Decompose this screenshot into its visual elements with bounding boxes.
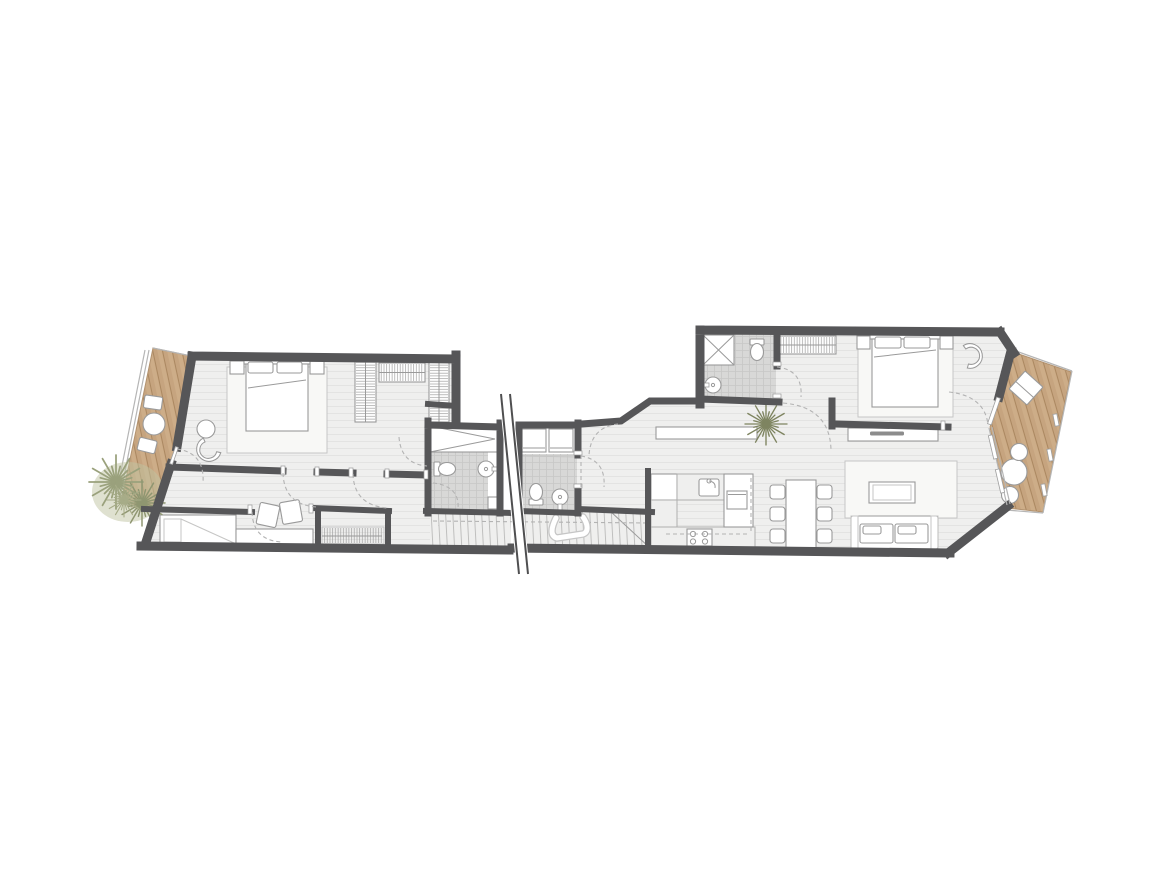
pillow [277, 362, 302, 373]
door-jamb [773, 362, 781, 366]
bathroom1-tiles [429, 452, 488, 510]
floor-plan-drawing [0, 0, 1170, 880]
washbasin [552, 489, 568, 505]
door-jamb [424, 470, 428, 479]
door-jamb [773, 394, 781, 398]
tall-unit [651, 474, 677, 500]
floor-plan-page [0, 0, 1170, 880]
tap [558, 504, 562, 510]
hall-sideboard [656, 427, 757, 439]
door-jamb [309, 504, 313, 513]
bathroom2-bottom-wall [519, 511, 578, 513]
pillow [248, 362, 273, 373]
tv-icon [870, 432, 904, 436]
door-jamb [315, 467, 319, 476]
pillow [875, 337, 901, 348]
washer [522, 429, 546, 452]
door-jamb [574, 451, 582, 455]
dryer [549, 429, 573, 452]
dining-chair [817, 507, 832, 521]
dining-area [770, 480, 832, 548]
closet-stub-wall [428, 404, 457, 406]
dining-chair [770, 485, 785, 499]
sofa-pillow [863, 526, 881, 534]
cushion [256, 502, 280, 528]
sofa-pillow [898, 526, 916, 534]
toilet [529, 484, 543, 506]
staircase [430, 511, 653, 548]
toilet [750, 339, 764, 361]
terrace-chair [1011, 444, 1028, 461]
dining-chair [817, 485, 832, 499]
stair-ledge-wall-right [578, 509, 652, 512]
daybed [160, 515, 236, 546]
dining-chair [817, 529, 832, 543]
double-bed [246, 364, 308, 431]
nightstand [230, 361, 244, 374]
door-jamb [248, 505, 252, 514]
dining-table [786, 480, 816, 548]
dining-chair [770, 529, 785, 543]
nightstand [857, 336, 870, 349]
terrace-chair [143, 395, 163, 410]
door-jamb [385, 469, 389, 478]
door-jamb [941, 421, 945, 430]
round-pouf [197, 420, 215, 438]
bistro-table [143, 413, 165, 435]
palm-center [764, 422, 768, 426]
nightstand [940, 336, 953, 349]
toilet [434, 462, 456, 476]
kitchen-sink [699, 479, 719, 496]
nightstand [310, 361, 324, 374]
door-jamb [349, 468, 353, 477]
stair-ledge-wall-left [426, 511, 513, 513]
stair-treads-left [430, 511, 511, 548]
dining-chair [770, 507, 785, 521]
pillow [904, 337, 930, 348]
double-bed [872, 339, 938, 407]
oven [727, 491, 747, 509]
